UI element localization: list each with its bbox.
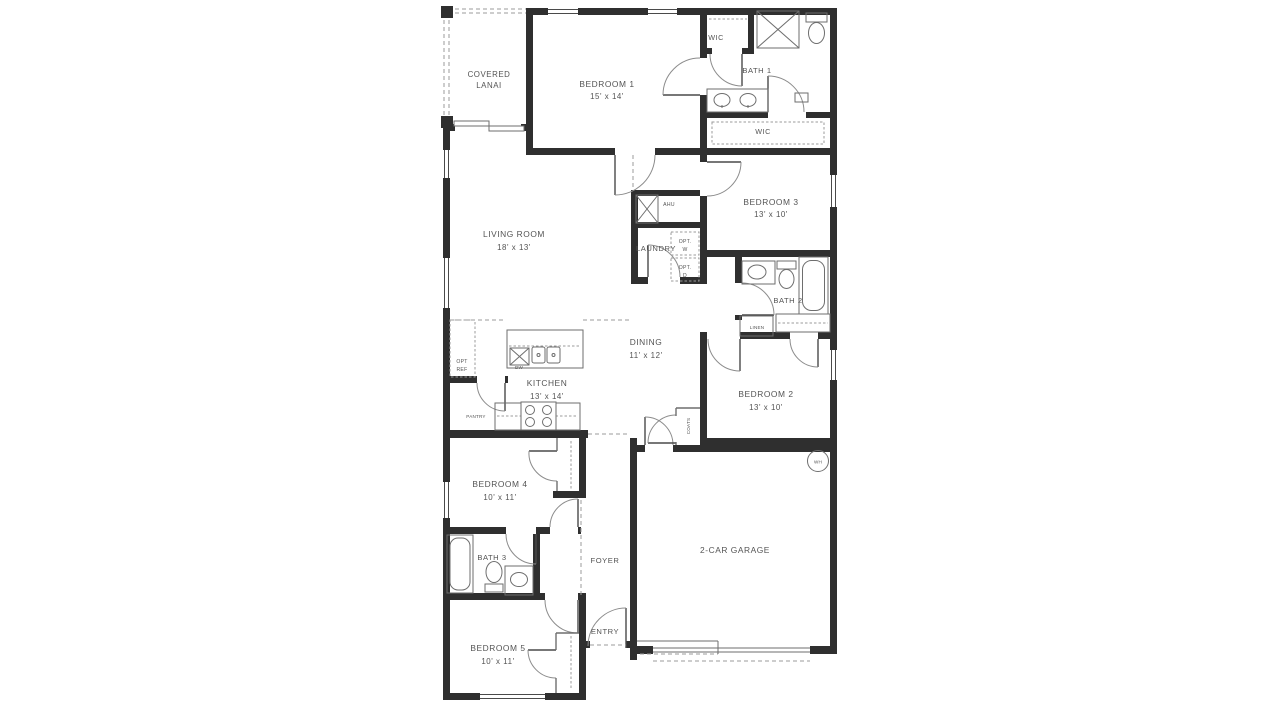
label-bedroom3-dims: 13' x 10': [754, 210, 788, 219]
label-opt-washer: OPT.: [679, 239, 692, 245]
label-opt-fridge: OPT: [456, 359, 467, 365]
label-bedroom2-dims: 13' x 10': [749, 403, 783, 412]
label-kitchen-dims: 13' x 14': [530, 392, 564, 401]
label-dining-dims: 11' x 12': [629, 351, 662, 360]
bath1-wic-door: [768, 76, 804, 112]
bedroom5-closet-door: [528, 650, 556, 678]
coats-closet-door: [648, 415, 676, 443]
label-opt-dryer-2: D: [683, 273, 687, 279]
label-dishwasher: DW: [515, 365, 524, 370]
shower: [757, 11, 799, 48]
label-wic-main: WIC: [755, 127, 771, 136]
vanity: [742, 261, 775, 284]
label-bedroom5: BEDROOM 5: [470, 643, 525, 653]
ahu-closet: [636, 195, 658, 223]
lanai-slider-panel: [454, 121, 489, 126]
range: [521, 402, 556, 430]
label-opt-dryer: OPT.: [679, 265, 692, 271]
bedroom1-bath1-door: [663, 58, 700, 95]
bath2-door: [742, 283, 774, 315]
toilet: [777, 261, 796, 289]
bedroom2-closet-door: [790, 339, 818, 367]
label-laundry: LAUNDRY: [636, 244, 676, 253]
label-bedroom4: BEDROOM 4: [472, 479, 527, 489]
label-entry: ENTRY: [591, 627, 619, 636]
tub: [447, 535, 473, 593]
floor-plan: COVERED LANAI BEDROOM 1 15' x 14' WIC BA…: [0, 0, 1280, 720]
label-kitchen: KITCHEN: [527, 378, 568, 388]
tub: [799, 257, 828, 314]
label-bath1: BATH 1: [742, 66, 771, 75]
label-dining: DINING: [630, 337, 663, 347]
bath3-fixtures: [447, 535, 533, 595]
lanai-post: [441, 116, 453, 128]
label-living-room-dims: 18' x 13': [497, 243, 531, 252]
bedroom2-door: [708, 339, 740, 371]
label-ahu: AHU: [663, 202, 675, 208]
label-bedroom1: BEDROOM 1: [579, 79, 634, 89]
bath1-fixtures: [707, 11, 827, 112]
label-bath2: BATH 2: [773, 296, 802, 305]
bedroom1-door: [615, 155, 655, 195]
label-covered-lanai: COVERED: [468, 70, 511, 79]
label-linen: LINEN: [750, 325, 765, 330]
label-opt-fridge-2: REF: [456, 367, 467, 373]
wic-upper-door: [710, 54, 742, 86]
bedroom5-door: [545, 600, 578, 633]
label-pantry: PANTRY: [466, 414, 485, 419]
double-sink: [532, 347, 560, 363]
closet-partitions: [556, 314, 830, 693]
bedroom4-closet-door: [529, 451, 557, 481]
label-foyer: FOYER: [591, 556, 620, 565]
label-coats: COATS: [686, 418, 691, 434]
label-bedroom4-dims: 10' x 11': [483, 493, 516, 502]
label-bedroom3: BEDROOM 3: [743, 197, 798, 207]
floor-plan-page: COVERED LANAI BEDROOM 1 15' x 14' WIC BA…: [0, 0, 1280, 720]
toilet: [806, 13, 827, 44]
label-bedroom1-dims: 15' x 14': [590, 92, 624, 101]
label-wic-upper: WIC: [708, 33, 724, 42]
bath3-door: [506, 534, 536, 564]
label-water-heater: WH: [814, 460, 822, 465]
double-vanity: [707, 89, 768, 112]
bedroom4-door: [550, 499, 578, 527]
pantry-door: [477, 383, 505, 411]
lanai-post: [441, 6, 453, 18]
vanity: [505, 566, 533, 595]
label-covered-lanai-2: LANAI: [476, 81, 502, 90]
dishwasher: [510, 348, 529, 365]
label-living-room: LIVING ROOM: [483, 229, 545, 239]
toilet: [485, 562, 503, 593]
label-bedroom2: BEDROOM 2: [738, 389, 793, 399]
lanai-slider-panel: [489, 126, 524, 131]
label-garage: 2-CAR GARAGE: [700, 545, 770, 555]
label-bath3: BATH 3: [477, 553, 506, 562]
label-opt-washer-2: W: [682, 247, 687, 253]
bedroom3-door: [707, 162, 741, 196]
label-bedroom5-dims: 10' x 11': [481, 657, 514, 666]
